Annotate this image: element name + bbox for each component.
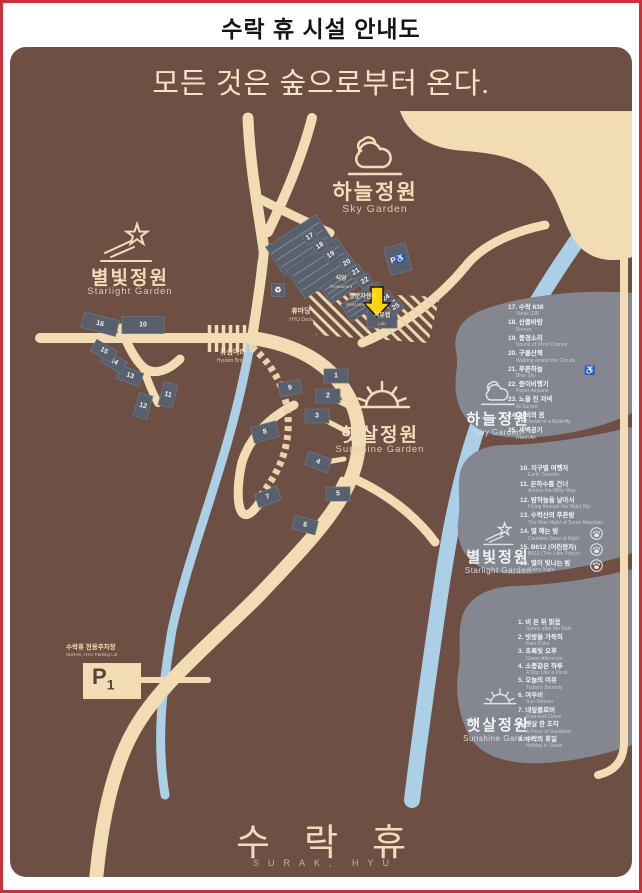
facility-map-board: 수락 휴 시설 안내도 모든 것은 숲으로부터 온다. <box>0 0 642 893</box>
legend-item-name-en: Dawn Air <box>516 435 618 441</box>
restaurant-label-en: Restaurant <box>318 284 364 290</box>
legend-item-name-ko: 16. 별이 빛나는 밤 <box>520 560 630 567</box>
building-number: 5 <box>336 491 340 498</box>
building-11: 11 <box>158 382 178 409</box>
starlight-garden-label-en: Starlight Garden <box>60 286 200 297</box>
legend-item-name-ko: 25. 새벽공기 <box>508 427 618 434</box>
legend-item-name-en: Starry Night <box>528 567 630 573</box>
legend-item-name-en: The Dream of a Butterfly <box>516 419 618 425</box>
welcome-center-label: 방문자센터 Welcome Center <box>336 294 390 307</box>
legend-item-name-ko: 6. 여우비 <box>518 692 628 699</box>
building-1: 1 <box>324 369 348 383</box>
building-16: 16 <box>81 312 120 337</box>
legend-item-name-en: Today's Serenity <box>526 685 628 691</box>
parking-p-sub: 1 <box>107 676 115 692</box>
legend-item-name-en: Sunny after the Rain <box>526 626 628 632</box>
legend-item-name-ko: 10. 지구별 여행자 <box>520 465 630 472</box>
building-10: 10 <box>122 317 164 334</box>
parking-label-ko: 수락휴 전용주차장 <box>66 644 156 652</box>
hyu-deck-label: 휴마당 HYU Deck <box>272 308 330 323</box>
legend-list-starlight: 10. 지구별 여행자Earth Traveler11. 은하수를 건너Acro… <box>520 465 630 576</box>
pet-friendly-icon <box>590 559 603 572</box>
building-12: 12 <box>133 393 153 420</box>
restaurant-label-ko: 식당 <box>318 276 364 284</box>
legend-item-10: 10. 지구별 여행자Earth Traveler <box>520 465 630 477</box>
parking-label: 수락휴 전용주차장 SURAK, HYU Parking Lot <box>66 644 156 658</box>
legend-item-name-ko: 18. 산들바람 <box>508 319 618 326</box>
legend-item-18: 18. 산들바람Breeze <box>508 319 618 330</box>
legend-item-name-en: Sound of Wind Chimes <box>516 342 618 348</box>
legend-item-name-en: Flying through the Night Sky <box>528 504 630 510</box>
legend-item-4: 4. 소풍같은 하루A Day Like a Picnic <box>518 663 628 674</box>
legend-item-name-ko: 21. 푸른하늘 <box>508 366 618 373</box>
legend-item-name-ko: 11. 은하수를 건너 <box>520 481 630 488</box>
legend-item-name-ko: 24. 나비의 꿈 <box>508 412 618 419</box>
legend-item-name-en: B612 (The Little Prince) <box>528 551 630 557</box>
legend-item-15: 15. B612 (어린왕자)B612 (The Little Prince) <box>520 544 630 556</box>
bridge-label: 휴심다리 Hyusim Bridge <box>203 349 263 364</box>
legend-item-11: 11. 은하수를 건너Across the Milky Way <box>520 481 630 493</box>
legend-item-name-ko: 23. 노을 진 저녁 <box>508 396 618 403</box>
legend-item-name-ko: 3. 초록빛 오후 <box>518 648 628 655</box>
legend-item-name-ko: 5. 오늘의 여유 <box>518 677 628 684</box>
welcome-center-label-en: Welcome Center <box>336 302 390 308</box>
legend-item-name-en: Rain Color <box>526 641 628 647</box>
legend-item-name-en: Four-leaf Clover <box>526 714 628 720</box>
hyu-deck-label-ko: 휴마당 <box>272 308 330 317</box>
legend-item-name-ko: 8. 햇살 한 조각 <box>518 721 628 728</box>
legend-item-name-en: At Sunset <box>516 404 618 410</box>
lab-label-ko: 치유랩 <box>364 313 400 321</box>
legend-item-19: 19. 풍경소리Sound of Wind Chimes <box>508 335 618 346</box>
lab-label: 치유랩 Lab <box>364 313 400 326</box>
map-canvas: P♿♻1718192021222324251234567891011121314… <box>10 47 632 877</box>
legend-item-name-en: Holiday in Surak <box>526 743 628 749</box>
legend-item-name-ko: 14. 별 헤는 밤 <box>520 528 630 535</box>
pet-friendly-icon <box>590 527 603 540</box>
board-title: 수락 휴 시설 안내도 <box>0 10 642 44</box>
legend-item-23: 23. 노을 진 저녁At Sunset <box>508 396 618 407</box>
legend-item-name-ko: 9. 수락의 휴일 <box>518 736 628 743</box>
legend-item-name-en: A Day Like a Picnic <box>526 670 628 676</box>
legend-item-12: 12. 밤하늘을 날아서Flying through the Night Sky <box>520 497 630 509</box>
legend-item-24: 24. 나비의 꿈The Dream of a Butterfly <box>508 412 618 423</box>
sky-garden-label-en: Sky Garden <box>295 203 455 215</box>
shooting-star-icon <box>101 224 151 261</box>
legend-item-name-ko: 13. 수락산의 푸른밤 <box>520 512 630 519</box>
legend-item-1: 1. 비 온 뒤 맑음Sunny after the Rain <box>518 619 628 630</box>
bridge-deck <box>206 325 252 352</box>
legend-item-17: 17. 수락 638Surak 638 <box>508 304 618 315</box>
lab-label-en: Lab <box>364 321 400 327</box>
building-♻: ♻ <box>272 284 285 297</box>
legend-item-name-en: Blue Sky <box>516 373 618 379</box>
legend-list-sunshine: 1. 비 온 뒤 맑음Sunny after the Rain2. 빗방울 가득… <box>518 619 628 750</box>
building-number: ♻ <box>274 286 281 295</box>
hyu-deck-label-en: HYU Deck <box>272 317 330 323</box>
building-number: 2 <box>326 393 330 400</box>
parking-label-en: SURAK, HYU Parking Lot <box>66 652 156 658</box>
legend-item-14: 14. 별 헤는 밤Counting Stars at Night <box>520 528 630 540</box>
restaurant-label: 식당 Restaurant <box>318 276 364 289</box>
legend-item-16: 16. 별이 빛나는 밤Starry Night <box>520 560 630 572</box>
sun-icon <box>355 382 409 407</box>
legend-item-name-ko: 20. 구름산책 <box>508 350 618 357</box>
sky-garden-label-ko: 하늘정원 <box>295 176 455 206</box>
legend-item-name-ko: 15. B612 (어린왕자) <box>520 544 630 551</box>
legend-item-8: 8. 햇살 한 조각A Piece of Sunshine <box>518 721 628 732</box>
building-2: 2 <box>316 389 340 403</box>
legend-list-sky: 17. 수락 638Surak 63818. 산들바람Breeze19. 풍경소… <box>508 304 618 443</box>
legend-item-name-en: Counting Stars at Night <box>528 536 630 542</box>
legend-item-name-ko: 7. 네잎클로버 <box>518 707 628 714</box>
legend-item-name-en: Sun Shower <box>526 699 628 705</box>
legend-item-name-en: A Piece of Sunshine <box>526 729 628 735</box>
legend-item-9: 9. 수락의 휴일Holiday in Surak <box>518 736 628 747</box>
legend-item-21: 21. 푸른하늘Blue Sky♿ <box>508 366 618 377</box>
legend-item-2: 2. 빗방울 가득히Rain Color <box>518 634 628 645</box>
legend-item-name-ko: 1. 비 온 뒤 맑음 <box>518 619 628 626</box>
legend-item-name-ko: 17. 수락 638 <box>508 304 618 311</box>
legend-item-name-en: Surak 638 <box>516 311 618 317</box>
sunshine-garden-label-ko: 햇살정원 <box>310 420 450 447</box>
welcome-center-label-ko: 방문자센터 <box>336 294 390 302</box>
cloud-icon <box>349 137 401 174</box>
legend-item-3: 3. 초록빛 오후Green Afternoon <box>518 648 628 659</box>
legend-item-22: 22. 종이비행기Paper Airplane <box>508 381 618 392</box>
legend-item-name-en: Earth Traveler <box>528 472 630 478</box>
legend-item-name-en: The Blue Night of Surak Mountain <box>528 520 630 526</box>
legend-item-25: 25. 새벽공기Dawn Air <box>508 427 618 438</box>
building-5: 5 <box>326 487 350 501</box>
wheelchair-icon: ♿ <box>584 365 595 376</box>
bridge-label-en: Hyusim Bridge <box>203 358 263 364</box>
building-P♿: P♿ <box>384 243 412 276</box>
bridge-label-ko: 휴심다리 <box>203 349 263 358</box>
building-8: 8 <box>250 421 279 443</box>
legend-item-name-ko: 2. 빗방울 가득히 <box>518 634 628 641</box>
footer-logo-en: SURAK, HYU <box>0 858 642 868</box>
building-number: 3 <box>315 413 319 420</box>
legend-item-name-en: Walking amidst the Clouds <box>516 358 618 364</box>
parking-p1-marker: P1 <box>92 664 114 692</box>
legend-item-5: 5. 오늘의 여유Today's Serenity <box>518 677 628 688</box>
legend-item-name-ko: 4. 소풍같은 하루 <box>518 663 628 670</box>
legend-item-13: 13. 수락산의 푸른밤The Blue Night of Surak Moun… <box>520 512 630 524</box>
legend-item-7: 7. 네잎클로버Four-leaf Clover <box>518 707 628 718</box>
building-number: 10 <box>139 322 147 329</box>
legend-item-name-ko: 12. 밤하늘을 날아서 <box>520 497 630 504</box>
legend-item-6: 6. 여우비Sun Shower <box>518 692 628 703</box>
legend-item-name-ko: 19. 풍경소리 <box>508 335 618 342</box>
legend-item-name-en: Green Afternoon <box>526 656 628 662</box>
parking-p: P <box>92 664 107 689</box>
pet-friendly-icon <box>590 543 603 556</box>
sunshine-garden-label-en: Sunshine Garden <box>310 444 450 455</box>
legend-item-name-en: Across the Milky Way <box>528 488 630 494</box>
legend-item-name-en: Breeze <box>516 327 618 333</box>
legend-item-name-en: Paper Airplane <box>516 388 618 394</box>
building-7: 7 <box>254 486 281 507</box>
building-number: 1 <box>334 373 338 380</box>
legend-item-name-ko: 22. 종이비행기 <box>508 381 618 388</box>
legend-item-20: 20. 구름산책Walking amidst the Clouds <box>508 350 618 361</box>
building-6: 6 <box>292 515 319 535</box>
